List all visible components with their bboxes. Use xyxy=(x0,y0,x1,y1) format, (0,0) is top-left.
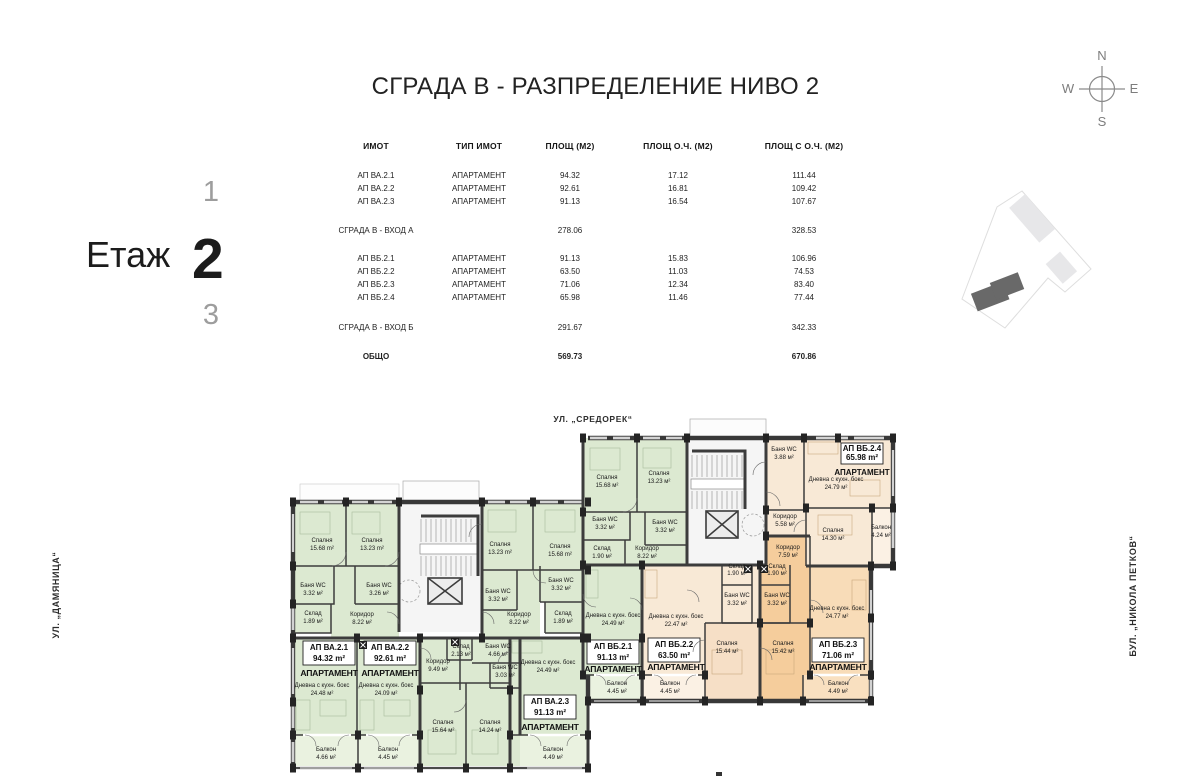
svg-text:94.32 m²: 94.32 m² xyxy=(313,654,345,663)
svg-text:АПАРТАМЕНТ: АПАРТАМЕНТ xyxy=(809,662,867,672)
svg-text:W: W xyxy=(1062,81,1075,96)
svg-text:АП ВБ.2.1: АП ВБ.2.1 xyxy=(594,642,633,651)
svg-text:S: S xyxy=(1098,114,1107,129)
svg-text:АП ВА.2.1: АП ВА.2.1 xyxy=(310,643,349,652)
svg-text:АП ВА.2.2: АП ВА.2.2 xyxy=(371,643,410,652)
svg-text:63.50 m²: 63.50 m² xyxy=(658,651,690,660)
svg-text:АПАРТАМЕНТ: АПАРТАМЕНТ xyxy=(834,468,889,477)
svg-text:АП ВБ.2.4: АП ВБ.2.4 xyxy=(843,444,882,453)
svg-text:АПАРТАМЕНТ: АПАРТАМЕНТ xyxy=(300,668,358,678)
svg-text:65.98 m²: 65.98 m² xyxy=(846,453,878,462)
svg-text:АПАРТАМЕНТ: АПАРТАМЕНТ xyxy=(647,662,705,672)
svg-text:АП ВБ.2.2: АП ВБ.2.2 xyxy=(655,640,694,649)
svg-text:АПАРТАМЕНТ: АПАРТАМЕНТ xyxy=(521,722,579,732)
svg-text:АП ВБ.2.3: АП ВБ.2.3 xyxy=(819,640,858,649)
svg-text:Склад1.90 м²: Склад1.90 м² xyxy=(767,564,786,577)
svg-text:АП ВА.2.3: АП ВА.2.3 xyxy=(531,697,570,706)
svg-text:91.13 m²: 91.13 m² xyxy=(597,653,629,662)
svg-text:71.06 m²: 71.06 m² xyxy=(822,651,854,660)
svg-text:АПАРТАМЕНТ: АПАРТАМЕНТ xyxy=(361,668,419,678)
svg-text:E: E xyxy=(1130,81,1139,96)
svg-text:АПАРТАМЕНТ: АПАРТАМЕНТ xyxy=(584,664,642,674)
svg-text:N: N xyxy=(1097,48,1106,63)
svg-text:91.13 m²: 91.13 m² xyxy=(534,708,566,717)
svg-text:92.61 m²: 92.61 m² xyxy=(374,654,406,663)
svg-text:Склад1.90 м²: Склад1.90 м² xyxy=(727,564,746,577)
